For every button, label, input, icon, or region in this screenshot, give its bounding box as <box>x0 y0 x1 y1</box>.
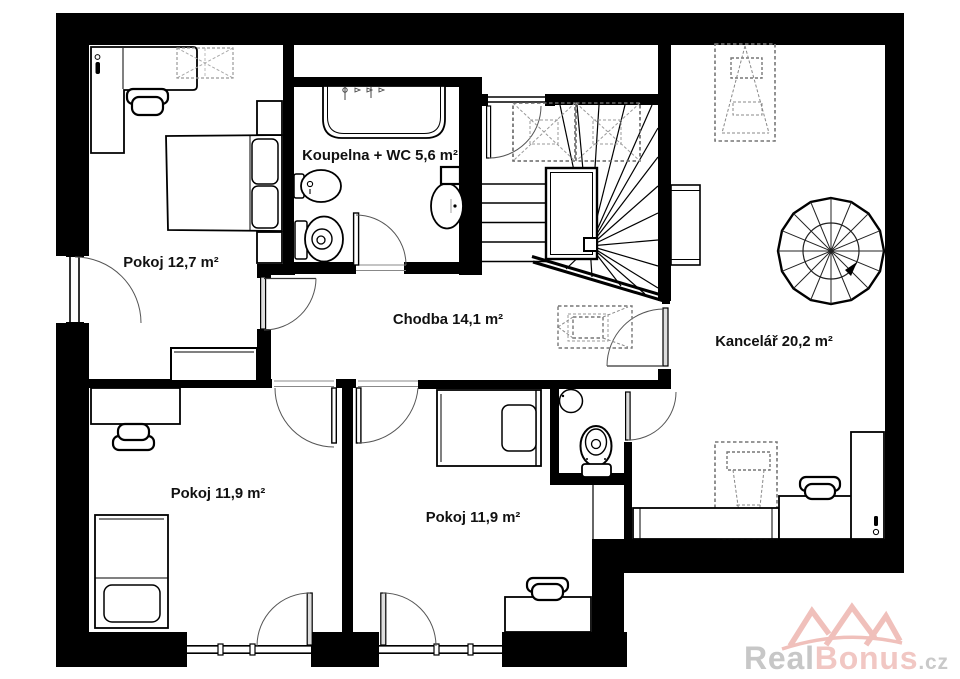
svg-text:Koupelna + WC 5,6 m²: Koupelna + WC 5,6 m² <box>302 148 458 164</box>
svg-text:RealBonus.cz: RealBonus.cz <box>744 640 949 676</box>
svg-text:Kancelář 20,2 m²: Kancelář 20,2 m² <box>715 334 833 350</box>
svg-text:Pokoj 11,9 m²: Pokoj 11,9 m² <box>171 486 266 502</box>
svg-text:Chodba 14,1 m²: Chodba 14,1 m² <box>393 312 503 328</box>
svg-text:Pokoj 12,7 m²: Pokoj 12,7 m² <box>123 255 218 271</box>
svg-text:Pokoj 11,9 m²: Pokoj 11,9 m² <box>426 510 521 526</box>
